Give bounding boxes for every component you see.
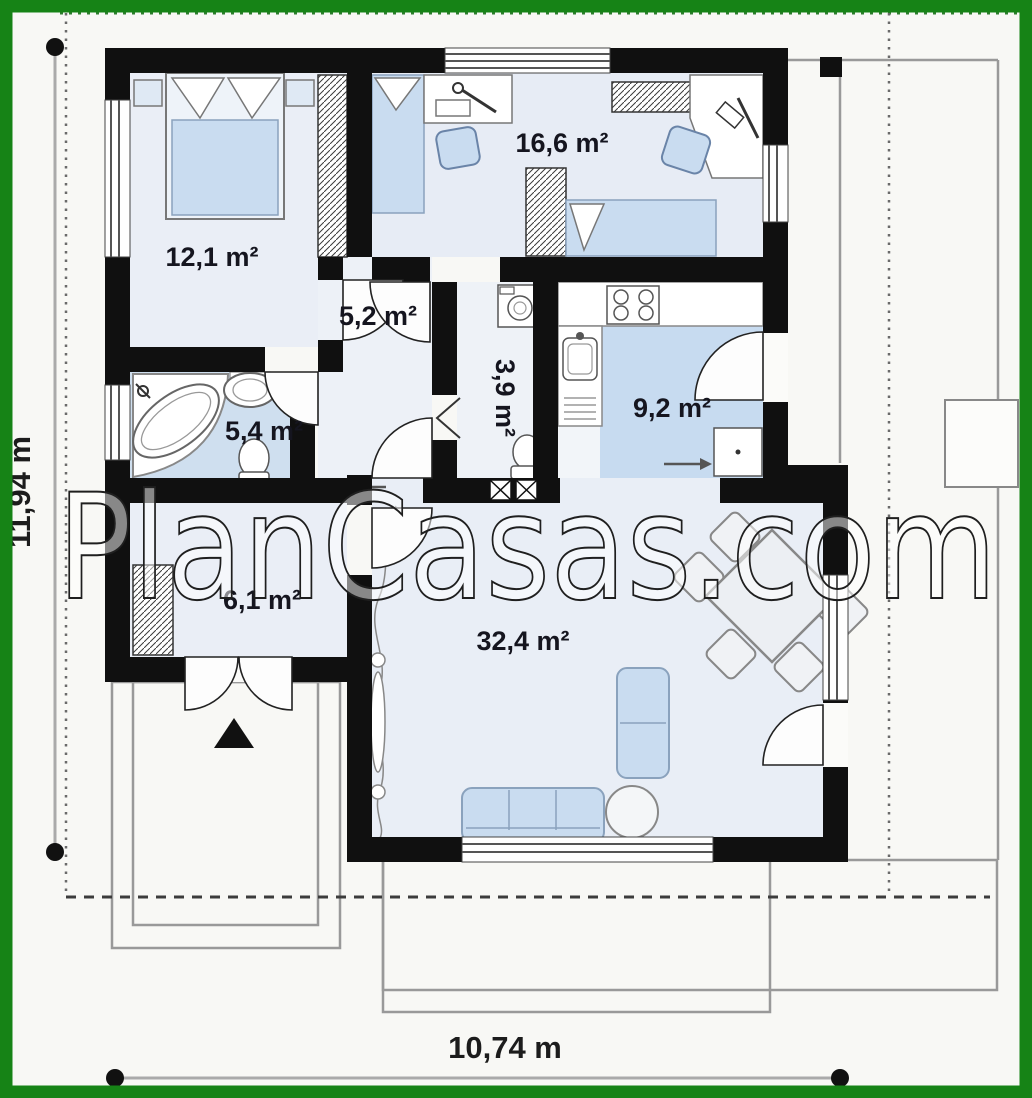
room-area-label: 5,4 m² <box>225 416 303 446</box>
coffee-table-icon <box>606 786 658 838</box>
curtain-ring-icon <box>371 785 385 799</box>
wardrobe-hatch <box>318 75 347 257</box>
watermark-text: PlanCasas.com <box>57 463 997 633</box>
room-area-label: 3,9 m² <box>490 359 520 437</box>
wall <box>533 282 558 478</box>
floor-plan: 12,1 m² 16,6 m² 5,2 m² 3,9 m² 9,2 m² 5,4… <box>0 0 1032 1098</box>
dimension-dot <box>106 1069 124 1087</box>
floor-plan-page: 12,1 m² 16,6 m² 5,2 m² 3,9 m² 9,2 m² 5,4… <box>0 0 1032 1098</box>
desk-lamp-icon <box>453 83 463 93</box>
room-area-label: 9,2 m² <box>633 393 711 423</box>
curtain-icon <box>371 672 385 772</box>
window <box>445 48 610 73</box>
wall <box>105 347 265 372</box>
faucet-icon <box>576 332 584 340</box>
wall <box>318 257 343 280</box>
window <box>105 385 130 460</box>
room-area-label: 12,1 m² <box>165 242 258 272</box>
dimension-dot <box>46 38 64 56</box>
room-area-label: 5,2 m² <box>339 301 417 331</box>
curtain-ring-icon <box>371 653 385 667</box>
roof-column <box>820 57 842 77</box>
window <box>105 100 130 257</box>
chair-icon <box>435 126 481 170</box>
wall <box>763 48 788 490</box>
sofa-icon <box>462 788 604 842</box>
wall <box>500 257 763 282</box>
door-gap <box>763 333 788 402</box>
nightstand-icon <box>134 80 162 106</box>
window <box>462 837 713 862</box>
room-area-label: 16,6 m² <box>515 128 608 158</box>
keyboard-icon <box>436 100 470 116</box>
bookshelf-hatch <box>526 168 566 256</box>
fridge-handle <box>736 450 741 455</box>
wall <box>432 282 457 395</box>
dimension-dot <box>46 843 64 861</box>
counter-icon <box>558 282 763 326</box>
wall <box>372 257 430 282</box>
dimension-label-width: 10,74 m <box>448 1030 562 1065</box>
wall <box>318 340 343 372</box>
window <box>763 145 788 222</box>
dimension-dot <box>831 1069 849 1087</box>
door-gap <box>823 703 848 767</box>
bed-blanket <box>172 120 278 215</box>
nightstand-icon <box>286 80 314 106</box>
wall <box>347 48 372 257</box>
